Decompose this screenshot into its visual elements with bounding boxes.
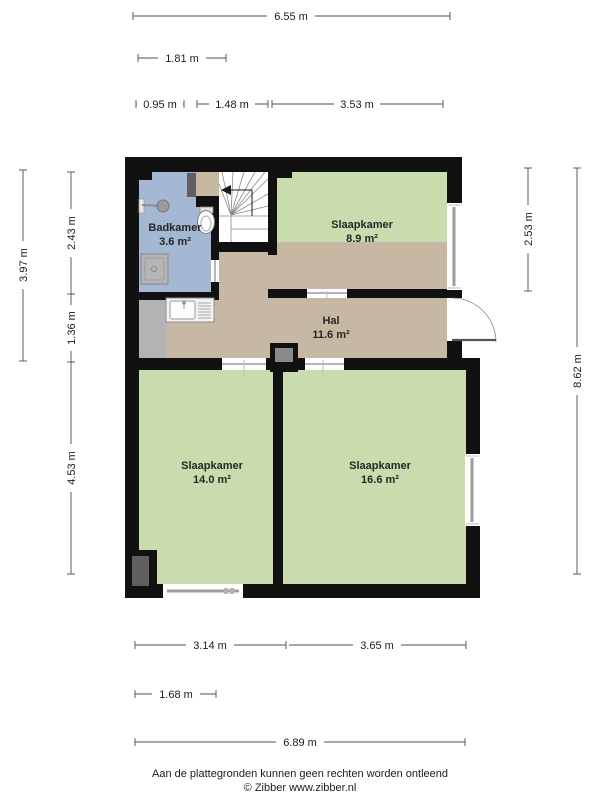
dimension-top-1-48: 1.48 m: [197, 97, 268, 111]
dimension-top-3-53: 3.53 m: [272, 97, 443, 111]
stairs-floor: [219, 172, 268, 242]
dim-label: 6.55 m: [274, 11, 308, 23]
stair-landing: [196, 172, 219, 197]
wall-bedroom89-hall: [268, 289, 462, 298]
dimension-left-2-43: 2.43 m: [64, 172, 78, 294]
floorplan: Badkamer 3.6 m² Slaapkamer 8.9 m² Hal 11…: [125, 157, 496, 598]
dimension-top-total: 6.55 m: [133, 9, 450, 23]
credit-text: © Zibber www.zibber.nl: [244, 782, 357, 794]
dimension-right-total: 8.62 m: [570, 168, 584, 574]
wall-notch-bedroom: [277, 172, 292, 178]
wall-stairs-bottom: [219, 242, 268, 252]
shower-tray: [141, 254, 168, 284]
dimension-right-2-53: 2.53 m: [521, 168, 535, 291]
wall-bedroom-divider: [273, 358, 283, 584]
slaapkamer-89-label: Slaapkamer: [331, 219, 393, 231]
badkamer-area: 3.6 m²: [159, 236, 191, 248]
dim-label: 0.95 m: [143, 99, 177, 111]
hal-area: 11.6 m²: [312, 329, 350, 341]
dim-label: 3.97 m: [18, 248, 30, 282]
dim-label: 4.53 m: [66, 451, 78, 485]
dim-label: 1.68 m: [159, 689, 193, 701]
dimension-left-1-36: 1.36 m: [64, 294, 78, 362]
dim-label: 1.48 m: [215, 99, 249, 111]
dim-label: 1.81 m: [165, 53, 199, 65]
shower-head: [157, 200, 169, 212]
wall-stairs-bedroom: [268, 157, 277, 255]
dim-label: 2.43 m: [66, 216, 78, 250]
slaapkamer-14-area: 14.0 m²: [193, 474, 231, 486]
floorplan-canvas: 6.55 m 1.81 m 0.95 m 1.48 m 3.53 m 3.97 …: [0, 0, 600, 800]
chimney-bottom-left: [125, 550, 157, 598]
slaapkamer-14-label: Slaapkamer: [181, 460, 243, 472]
dimension-bottom-3-65: 3.65 m: [289, 638, 466, 652]
dim-label: 3.53 m: [340, 99, 374, 111]
dimension-top-0-95: 0.95 m: [136, 97, 184, 111]
floorplan-page: 6.55 m 1.81 m 0.95 m 1.48 m 3.53 m 3.97 …: [0, 0, 600, 800]
dim-label: 6.89 m: [283, 737, 317, 749]
slaapkamer-89-area: 8.9 m²: [346, 233, 378, 245]
entry-gray-area: [139, 300, 167, 358]
wall-notch-bathroom: [139, 172, 152, 180]
dimension-bottom-3-14: 3.14 m: [135, 638, 286, 652]
dim-label: 2.53 m: [523, 212, 535, 246]
slaapkamer-16-area: 16.6 m²: [361, 474, 399, 486]
disclaimer-text: Aan de plattegronden kunnen geen rechten…: [152, 768, 448, 780]
chimney-hall: [270, 343, 298, 372]
window-slaapkamer-14: [163, 584, 243, 598]
slaapkamer-16-label: Slaapkamer: [349, 460, 411, 472]
dim-label: 3.14 m: [193, 640, 227, 652]
dimension-left-total: 3.97 m: [16, 170, 30, 361]
dim-label: 3.65 m: [360, 640, 394, 652]
dimension-bottom-1-68: 1.68 m: [135, 687, 216, 701]
dimension-bottom-total: 6.89 m: [135, 735, 465, 749]
wall-bathroom-right-lower: [211, 282, 219, 292]
window-slaapkamer-8-9: [447, 203, 462, 290]
dimension-top-1-81: 1.81 m: [138, 51, 226, 65]
shaft: [187, 173, 196, 197]
dim-label: 1.36 m: [66, 311, 78, 345]
front-door: [447, 298, 496, 342]
kitchen-counter: [166, 298, 214, 322]
badkamer-label: Badkamer: [148, 222, 202, 234]
hal-label: Hal: [322, 315, 339, 327]
dim-label: 8.62 m: [572, 354, 584, 388]
dimension-left-4-53: 4.53 m: [64, 362, 78, 574]
window-slaapkamer-16: [465, 454, 480, 526]
